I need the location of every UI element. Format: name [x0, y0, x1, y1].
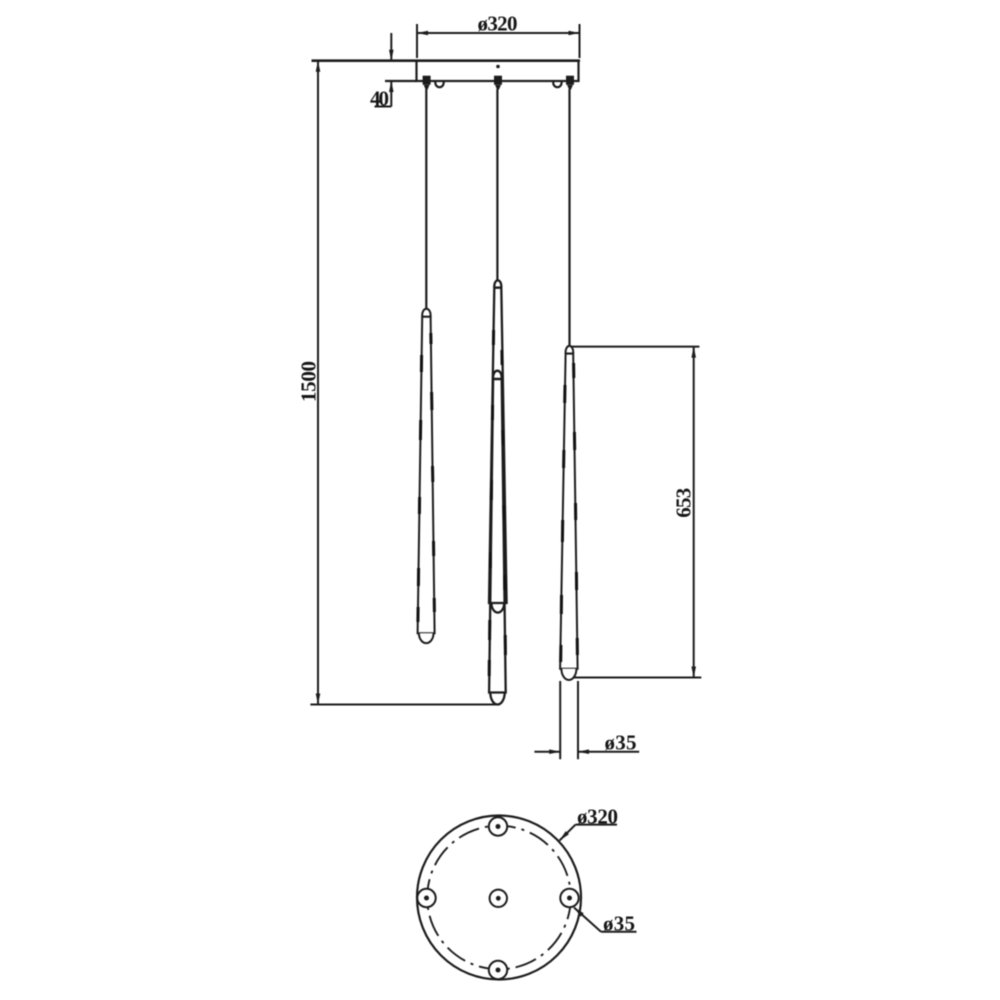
- svg-text:ø320: ø320: [577, 804, 618, 828]
- svg-text:40: 40: [370, 87, 389, 111]
- svg-text:1500: 1500: [296, 361, 320, 402]
- svg-text:ø35: ø35: [605, 731, 637, 755]
- svg-text:ø320: ø320: [478, 12, 518, 36]
- svg-text:ø35: ø35: [603, 912, 635, 936]
- svg-text:653: 653: [672, 488, 696, 518]
